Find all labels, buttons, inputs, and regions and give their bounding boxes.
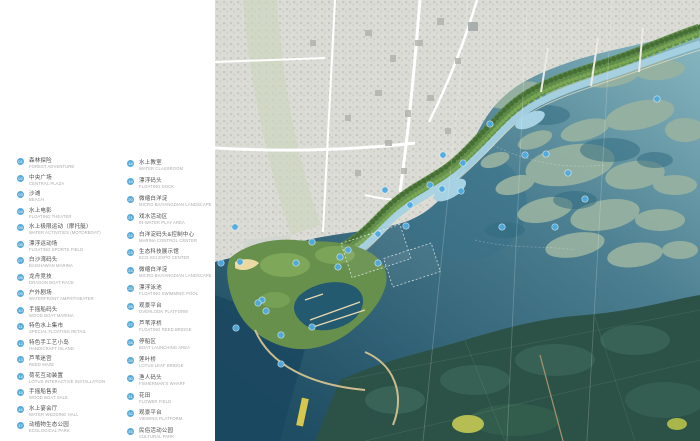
- legend-item-number-badge: 27: [127, 321, 134, 328]
- legend-item-number-badge: 28: [127, 339, 134, 346]
- map-marker: [552, 224, 558, 230]
- legend-item-number-badge: 02: [17, 175, 24, 182]
- map-marker: [375, 231, 381, 237]
- legend-item: 11 特色水上集市 SPECIAL FLOATING RETAIL: [17, 323, 123, 340]
- legend-item-number-badge: 17: [17, 422, 24, 429]
- map-marker: [278, 332, 284, 338]
- legend-item-number-badge: 14: [17, 373, 24, 380]
- legend-item: 01 森林探险 FOREST ADVENTURE: [17, 158, 123, 175]
- legend-item-number-badge: 31: [127, 393, 134, 400]
- legend-item-number-badge: 08: [17, 274, 24, 281]
- map-marker: [654, 96, 660, 102]
- legend-item: 03 沙滩 BEACH: [17, 191, 123, 208]
- map-marker: [439, 186, 445, 192]
- map-marker: [543, 151, 549, 157]
- legend-item-label-en: ECOLOGICAL PARK: [29, 428, 123, 433]
- map-marker: [582, 196, 588, 202]
- map-marker: [309, 324, 315, 330]
- legend-item-number-badge: 23: [127, 249, 134, 256]
- map-marker: [440, 152, 446, 158]
- legend-item-label-en: FLOATING SPORTS FIELD: [29, 247, 123, 252]
- legend-item-number-badge: 30: [127, 375, 134, 382]
- legend-item-label-en: BAISHAWAN MARINA: [29, 263, 123, 268]
- legend-item-number-badge: 29: [127, 357, 134, 364]
- map-marker: [403, 223, 409, 229]
- legend-item-number-badge: 05: [17, 224, 24, 231]
- legend-item-label-en: WATER WEDDING HALL: [29, 412, 123, 417]
- legend-item: 10 手摇船码头 WOOD BOAT MARINA: [17, 307, 123, 324]
- legend-item-number-badge: 04: [17, 208, 24, 215]
- map-marker: [382, 187, 388, 193]
- legend-item-number-badge: 21: [127, 214, 134, 221]
- legend-item: 07 白沙湾码头 BAISHAWAN MARINA: [17, 257, 123, 274]
- map-marker: [255, 300, 261, 306]
- legend-item-label-en: CENTRAL PLAZA: [29, 181, 123, 186]
- legend-item-number-badge: 13: [17, 356, 24, 363]
- legend-item-number-badge: 03: [17, 191, 24, 198]
- legend-item: 02 中央广场 CENTRAL PLAZA: [17, 175, 123, 192]
- legend-item: 17 动植物生态公园 ECOLOGICAL PARK: [17, 422, 123, 439]
- legend-item-label-en: LOTUS INTERACTIVE INSTALLATION: [29, 379, 123, 384]
- map-marker: [278, 361, 284, 367]
- legend-item-number-badge: 06: [17, 241, 24, 248]
- map-marker: [345, 247, 351, 253]
- legend-item-number-badge: 18: [127, 160, 134, 167]
- map-marker: [237, 259, 243, 265]
- legend-item-number-badge: 16: [17, 406, 24, 413]
- legend-item-number-badge: 20: [127, 196, 134, 203]
- legend-item-label-en: WOOD BOAT SALE: [29, 395, 123, 400]
- map-marker: [375, 260, 381, 266]
- legend-item-label-en: BEACH: [29, 197, 123, 202]
- map-marker: [218, 260, 224, 266]
- legend-item: 04 水上电影 FLOATING THEATER: [17, 208, 123, 225]
- map-marker: [427, 182, 433, 188]
- legend-item-number-badge: 33: [127, 428, 134, 435]
- legend-item: 16 水上宴会厅 WATER WEDDING HALL: [17, 406, 123, 423]
- legend-item: 12 特色手工艺小岛 HANDICRAFT ISLAND: [17, 340, 123, 357]
- legend-item-number-badge: 32: [127, 410, 134, 417]
- legend-item-number-badge: 25: [127, 285, 134, 292]
- legend-item-number-badge: 24: [127, 267, 134, 274]
- legend-item-number-badge: 12: [17, 340, 24, 347]
- legend-item-number-badge: 10: [17, 307, 24, 314]
- legend-item: 05 水上极限运动（摩托艇） WATER ACTIVITIES (MOTORBO…: [17, 224, 123, 241]
- legend-item-number-badge: 26: [127, 303, 134, 310]
- legend-item: 09 户外剧场 WATERFRONT AMPHITHEATER: [17, 290, 123, 307]
- map-marker: [487, 121, 493, 127]
- masterplan-map: [215, 0, 700, 441]
- legend-item-label-en: FLOATING THEATER: [29, 214, 123, 219]
- map-marker: [458, 188, 464, 194]
- map-marker: [233, 325, 239, 331]
- map-marker: [565, 170, 571, 176]
- legend-item: 14 荷花互动装置 LOTUS INTERACTIVE INSTALLATION: [17, 373, 123, 390]
- map-marker: [460, 160, 466, 166]
- map-marker: [522, 152, 528, 158]
- legend-item-number-badge: 22: [127, 232, 134, 239]
- flower-island: [452, 415, 484, 433]
- legend-item-number-badge: 11: [17, 323, 24, 330]
- legend-item-label-en: WATER ACTIVITIES (MOTORBOAT): [29, 230, 123, 235]
- legend-item-label-en: DRAGON BOAT RACE: [29, 280, 123, 285]
- map-marker: [337, 254, 343, 260]
- legend-item: 06 漂浮运动场 FLOATING SPORTS FIELD: [17, 241, 123, 258]
- legend-item: 13 芦苇迷宫 REED MAZE: [17, 356, 123, 373]
- map-marker: [263, 308, 269, 314]
- legend-item-label-en: REED MAZE: [29, 362, 123, 367]
- map-marker: [232, 224, 238, 230]
- legend-item-label-en: WATERFRONT AMPHITHEATER: [29, 296, 123, 301]
- legend-item-label-en: SPECIAL FLOATING RETAIL: [29, 329, 123, 334]
- map-marker: [499, 224, 505, 230]
- legend-column-left: 01 森林探险 FOREST ADVENTURE 02 中央广场 CENTRAL…: [17, 158, 123, 439]
- legend-item-number-badge: 15: [17, 389, 24, 396]
- legend-item-number-badge: 07: [17, 257, 24, 264]
- small-green-island: [667, 418, 687, 430]
- legend-item-label-en: WOOD BOAT MARINA: [29, 313, 123, 318]
- legend-item-label-en: FOREST ADVENTURE: [29, 164, 123, 169]
- legend-item-number-badge: 01: [17, 158, 24, 165]
- legend-item-number-badge: 09: [17, 290, 24, 297]
- map-marker: [293, 260, 299, 266]
- legend-item: 08 龙舟竞技 DRAGON BOAT RACE: [17, 274, 123, 291]
- legend-item-number-badge: 19: [127, 178, 134, 185]
- masterplan-page: 01 森林探险 FOREST ADVENTURE 02 中央广场 CENTRAL…: [0, 0, 700, 441]
- legend-item: 15 手摇船售卖 WOOD BOAT SALE: [17, 389, 123, 406]
- legend-item-label-en: HANDICRAFT ISLAND: [29, 346, 123, 351]
- map-marker: [309, 239, 315, 245]
- map-marker: [335, 264, 341, 270]
- map-marker: [407, 202, 413, 208]
